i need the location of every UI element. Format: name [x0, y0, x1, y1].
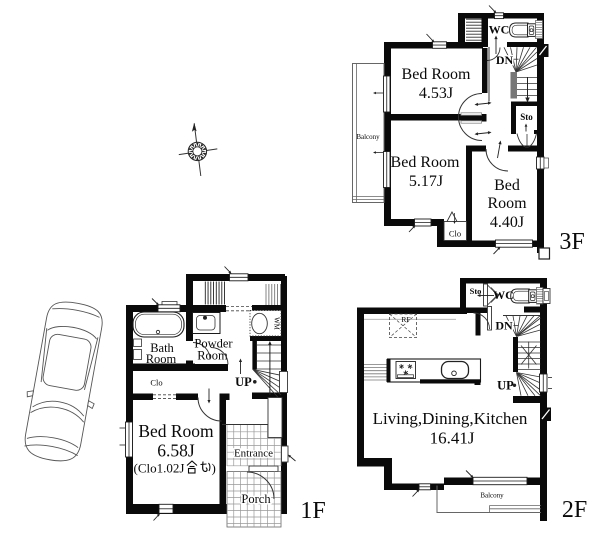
- svg-text:UP: UP: [235, 375, 252, 389]
- svg-text:Clo: Clo: [449, 229, 461, 239]
- svg-text:): ): [212, 461, 216, 476]
- svg-text:Sto: Sto: [520, 112, 533, 122]
- svg-text:2F: 2F: [562, 497, 587, 523]
- svg-text:3F: 3F: [559, 229, 584, 255]
- svg-text:(Clo1.02J: (Clo1.02J: [134, 461, 185, 476]
- svg-text:DN: DN: [495, 319, 513, 333]
- svg-text:Room: Room: [146, 352, 177, 366]
- svg-text:Room: Room: [487, 195, 527, 212]
- svg-text:DN: DN: [496, 53, 514, 67]
- svg-text:WC: WC: [489, 23, 510, 37]
- svg-text:Entrance: Entrance: [234, 448, 273, 460]
- svg-text:5.17J: 5.17J: [409, 173, 443, 190]
- svg-text:WC: WC: [493, 288, 514, 302]
- svg-text:Living,Dining,Kitchen: Living,Dining,Kitchen: [373, 409, 528, 428]
- svg-text:Bed Room: Bed Room: [402, 66, 471, 83]
- svg-text:16.41J: 16.41J: [430, 429, 475, 448]
- svg-text:Bed Room: Bed Room: [391, 154, 460, 171]
- svg-text:UP: UP: [497, 379, 514, 393]
- svg-text:Sto: Sto: [470, 286, 482, 296]
- svg-text:1F: 1F: [300, 498, 325, 524]
- svg-text:Clo: Clo: [150, 378, 162, 388]
- svg-text:RF: RF: [401, 315, 410, 324]
- svg-text:Bed: Bed: [494, 177, 520, 194]
- svg-text:Balcony: Balcony: [480, 492, 504, 500]
- svg-text:Balcony: Balcony: [356, 133, 380, 141]
- svg-text:Room: Room: [197, 348, 228, 362]
- svg-text:6.58J: 6.58J: [157, 441, 195, 461]
- svg-text:WM: WM: [273, 317, 281, 331]
- svg-text:4.53J: 4.53J: [419, 85, 453, 102]
- svg-text:Bed Room: Bed Room: [138, 421, 214, 441]
- svg-text:4.40J: 4.40J: [490, 214, 524, 231]
- svg-text:Porch: Porch: [241, 492, 271, 506]
